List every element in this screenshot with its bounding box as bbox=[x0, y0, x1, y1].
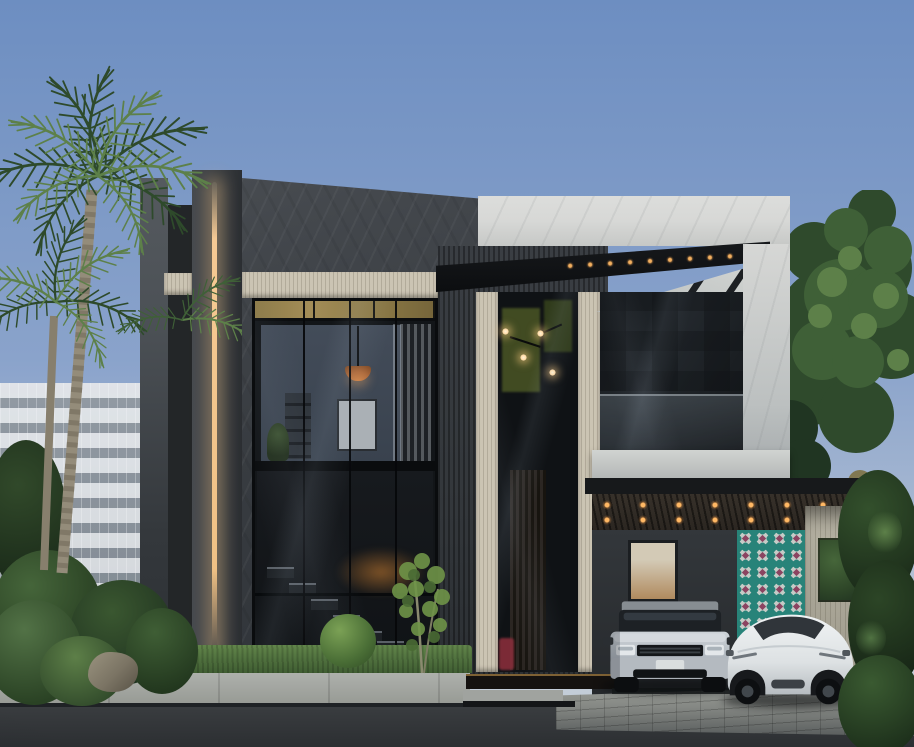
bush-highlight bbox=[868, 510, 902, 554]
white-marble-band bbox=[478, 196, 790, 246]
bush-highlight bbox=[856, 620, 886, 656]
entry-step-shadow bbox=[463, 701, 575, 707]
glass-reflection bbox=[498, 292, 578, 672]
travertine-band-main bbox=[242, 272, 438, 298]
villa-exterior-photo bbox=[0, 0, 914, 747]
carport-roof-slab bbox=[585, 478, 877, 494]
travertine-pilaster-left bbox=[476, 292, 498, 672]
right-garden-hedge bbox=[838, 470, 914, 747]
bush bbox=[126, 608, 198, 694]
balcony-window bbox=[600, 292, 743, 452]
entry-glass-wall bbox=[498, 292, 578, 672]
garden-rock bbox=[88, 652, 138, 692]
bush bbox=[838, 655, 914, 747]
marble-parapet-slab bbox=[592, 450, 790, 480]
round-shrub bbox=[320, 614, 376, 668]
white-marble-column bbox=[743, 244, 790, 480]
ornamental-tree bbox=[378, 545, 468, 675]
glass-reflection bbox=[600, 292, 743, 452]
palm-trees bbox=[0, 58, 242, 583]
entry-step-top bbox=[466, 674, 616, 689]
